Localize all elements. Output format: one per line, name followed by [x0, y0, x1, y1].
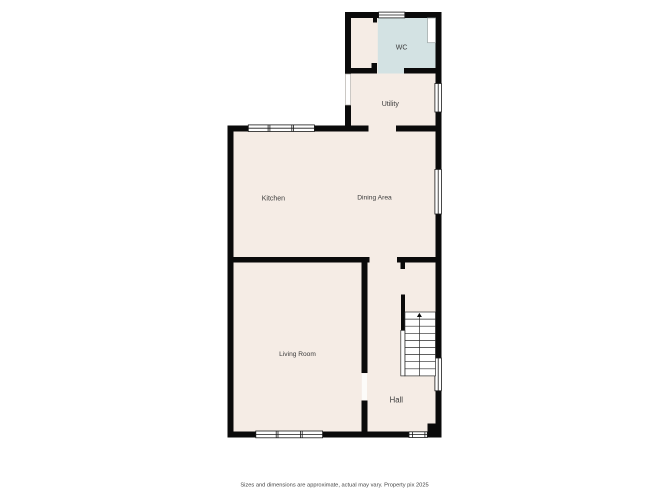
svg-text:WC: WC: [396, 45, 408, 52]
svg-text:Utility: Utility: [382, 101, 400, 108]
svg-text:Kitchen: Kitchen: [262, 196, 285, 203]
svg-text:Living Room: Living Room: [279, 351, 316, 358]
svg-text:Dining Area: Dining Area: [357, 194, 392, 201]
svg-text:Hall: Hall: [390, 395, 404, 404]
svg-text:Sizes and dimensions are appro: Sizes and dimensions are approximate, ac…: [240, 482, 428, 488]
